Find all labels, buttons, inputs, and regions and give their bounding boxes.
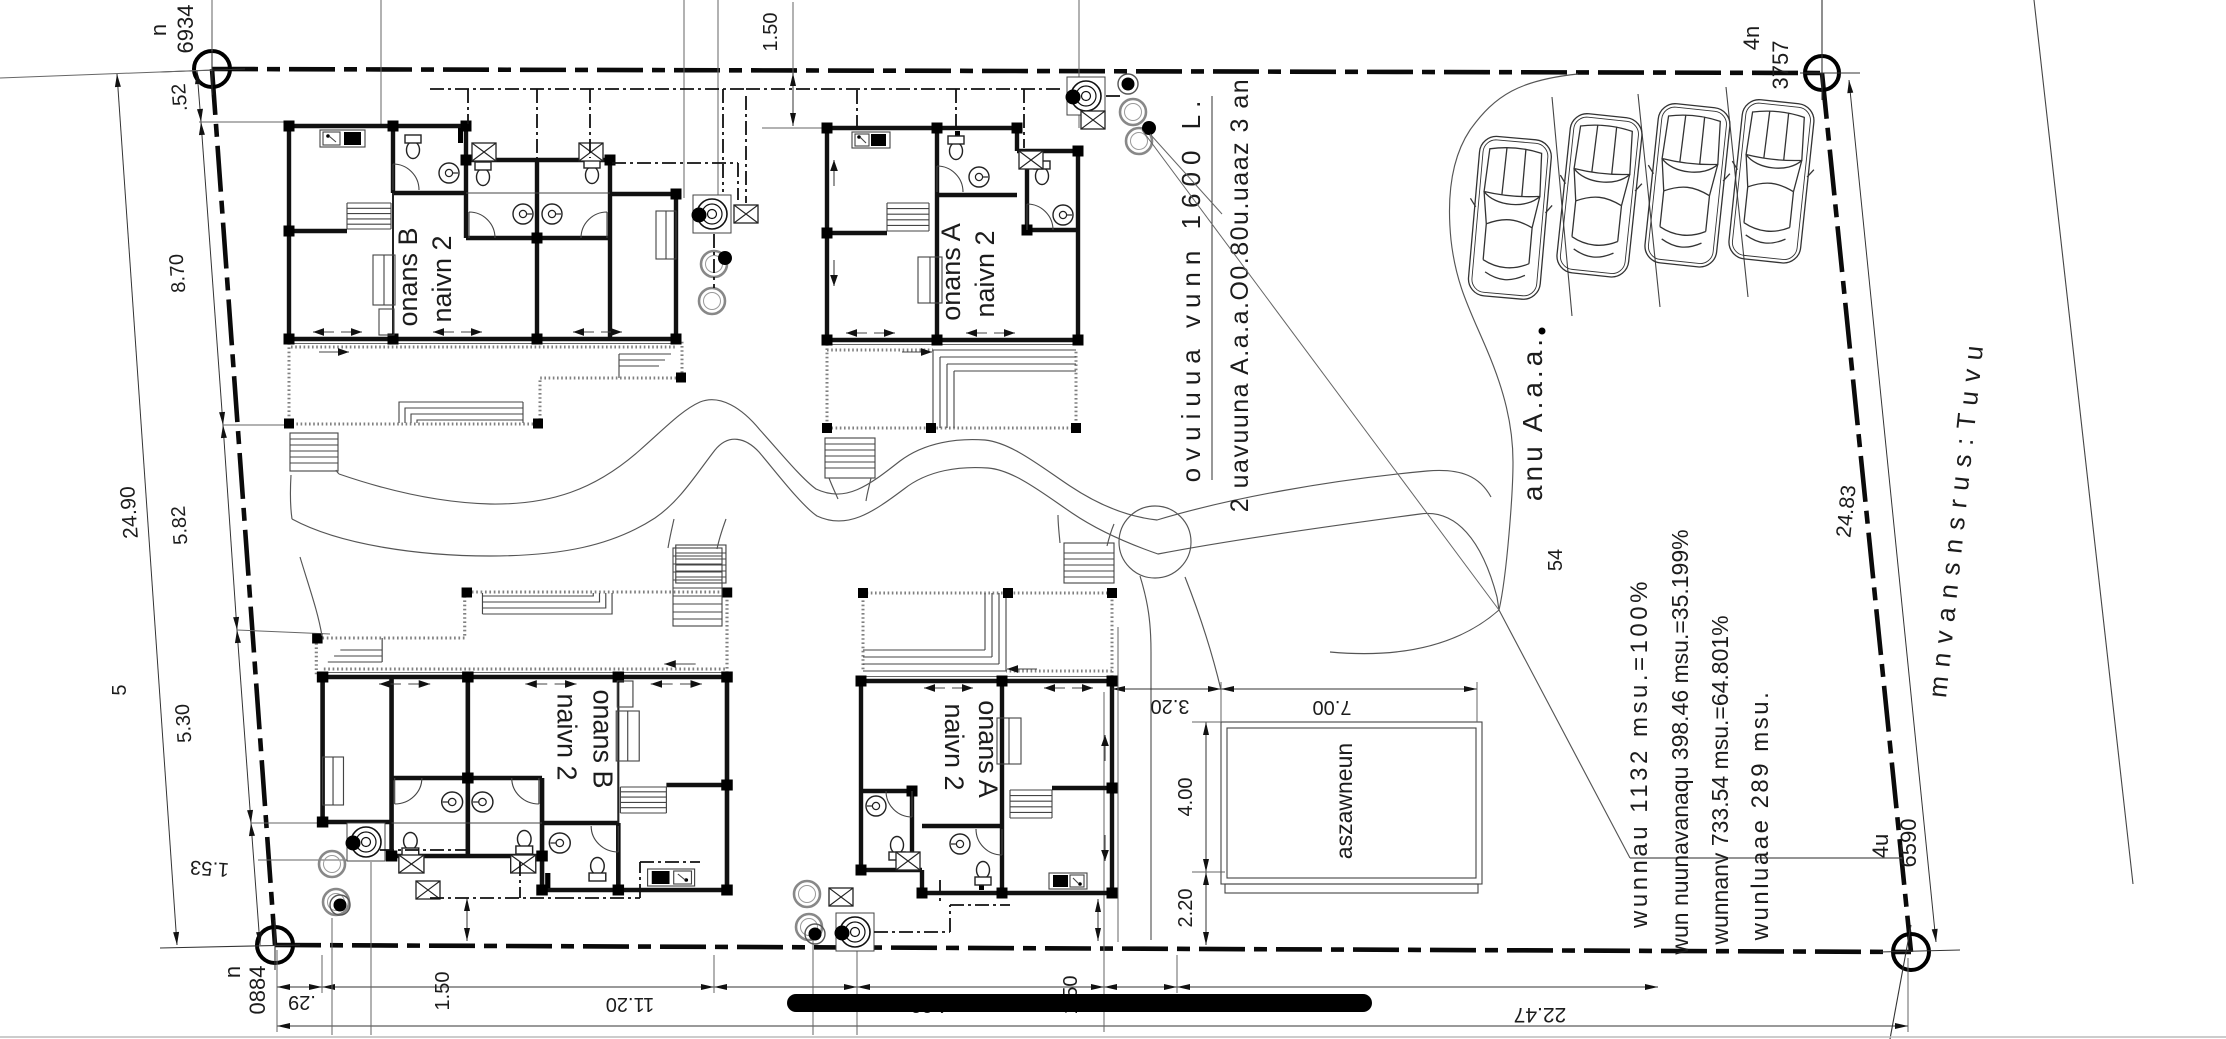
svg-text:1.50: 1.50 <box>760 13 782 52</box>
svg-text:24.90: 24.90 <box>116 485 143 539</box>
svg-text:wunluaae 289 msu.: wunluaae 289 msu. <box>1747 690 1774 942</box>
svg-text:11.20: 11.20 <box>606 993 655 1015</box>
svg-text:wun nuunavanaqu 398.46 msu.=35: wun nuunavanaqu 398.46 msu.=35.199% <box>1667 529 1693 955</box>
svg-text:22.47: 22.47 <box>1514 1003 1567 1026</box>
svg-text:4u: 4u <box>1868 834 1893 858</box>
svg-text:aszawneun: aszawneun <box>1331 743 1357 859</box>
svg-text:.52: .52 <box>168 83 192 112</box>
svg-text:3.20: 3.20 <box>1151 695 1190 717</box>
svg-text:5: 5 <box>109 684 131 695</box>
svg-text:5.82: 5.82 <box>168 505 193 545</box>
svg-text:6934: 6934 <box>173 5 198 54</box>
svg-text:wunnanv 733.54 msu.=64.801%: wunnanv 733.54 msu.=64.801% <box>1707 615 1733 945</box>
svg-text:4n: 4n <box>1739 26 1764 50</box>
svg-text:7.00: 7.00 <box>1313 696 1352 718</box>
svg-text:54: 54 <box>1545 549 1567 571</box>
svg-text:1.50: 1.50 <box>432 972 454 1011</box>
svg-text:1.53: 1.53 <box>189 856 229 881</box>
svg-text:3757: 3757 <box>1768 41 1793 90</box>
svg-text:wunnau 1132 msu.=100%: wunnau 1132 msu.=100% <box>1626 578 1653 929</box>
svg-text:6590: 6590 <box>1896 819 1921 868</box>
svg-text:n: n <box>220 966 245 978</box>
svg-text:4.00: 4.00 <box>1175 778 1197 817</box>
svg-text:2.20: 2.20 <box>1175 889 1197 928</box>
svg-text:8.70: 8.70 <box>166 253 191 293</box>
svg-text:n: n <box>146 24 171 36</box>
svg-text:ovuiuua vunn 1600 L.: ovuiuua vunn 1600 L. <box>1176 94 1206 483</box>
svg-text:0884: 0884 <box>245 966 270 1015</box>
svg-text:.29: .29 <box>288 991 316 1013</box>
svg-text:anu A.a.a.: anu A.a.a. <box>1517 335 1548 501</box>
svg-text:5.30: 5.30 <box>172 703 197 743</box>
svg-text:2 uavuuna A.a.a.O0.80u.uaaz 3: 2 uavuuna A.a.a.O0.80u.uaaz 3 an <box>1226 78 1254 512</box>
